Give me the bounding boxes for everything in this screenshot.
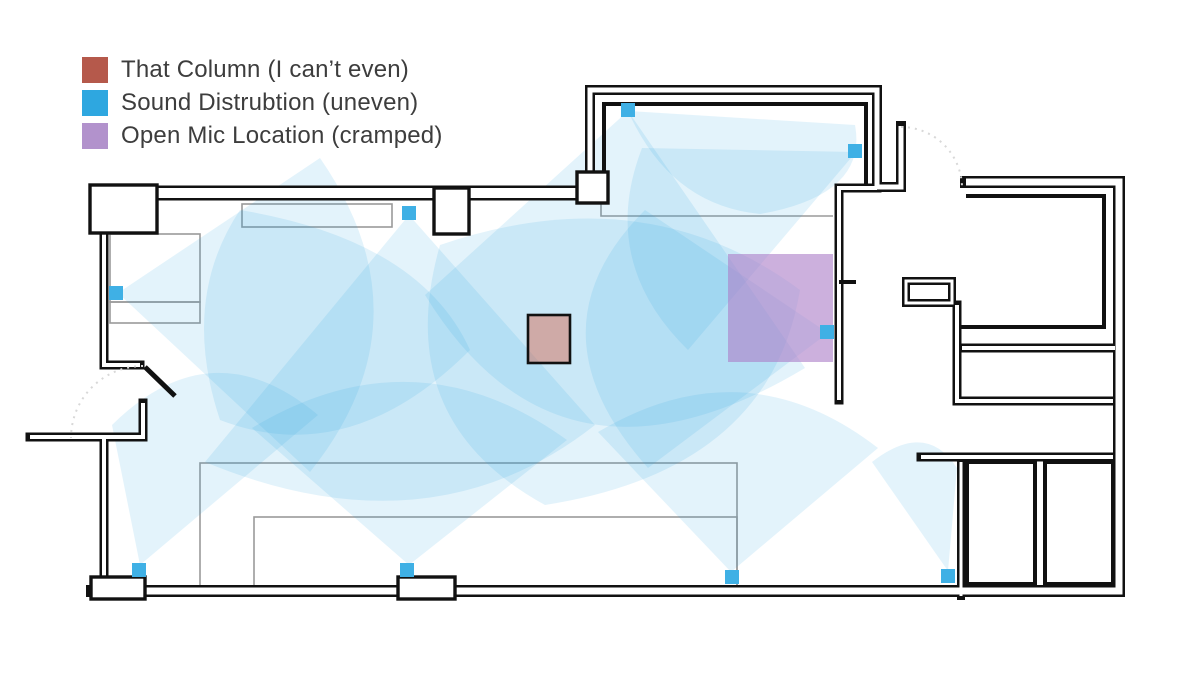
legend-row-column: That Column (I can’t even) xyxy=(82,57,443,83)
pier-top-mid xyxy=(434,188,469,234)
floor-plan-page: That Column (I can’t even) Sound Distrub… xyxy=(0,0,1200,693)
speaker-marker xyxy=(132,563,146,577)
wall-main-right-core xyxy=(839,188,877,400)
column-layer xyxy=(528,315,570,363)
legend-swatch-openmic xyxy=(82,123,108,149)
pier-stage-corner xyxy=(577,172,608,203)
wall-main-right xyxy=(839,188,877,400)
speaker-marker xyxy=(402,206,416,220)
legend-swatch-column xyxy=(82,57,108,83)
legend-row-sound: Sound Distrubtion (uneven) xyxy=(82,90,443,116)
bath-stall-left xyxy=(967,462,1035,584)
speaker-marker xyxy=(941,569,955,583)
speaker-marker xyxy=(820,325,834,339)
wall-corridor-core xyxy=(957,305,1113,401)
pier-bottom-left xyxy=(91,577,145,599)
open-mic-area xyxy=(728,254,833,362)
bath-stall-right xyxy=(1045,462,1113,584)
door-swing-arc-right xyxy=(901,127,962,188)
pier-bottom-mid xyxy=(398,577,455,599)
speaker-marker xyxy=(400,563,414,577)
wall-office-inner xyxy=(959,196,1104,327)
legend-label-openmic: Open Mic Location (cramped) xyxy=(121,122,443,150)
speaker-marker xyxy=(725,570,739,584)
column-marker xyxy=(528,315,570,363)
wall-corridor xyxy=(957,305,1113,401)
counter-bottom-inner xyxy=(254,517,737,586)
speaker-marker xyxy=(621,103,635,117)
speaker-marker xyxy=(848,144,862,158)
legend-label-sound: Sound Distrubtion (uneven) xyxy=(121,89,418,117)
wall-closet xyxy=(906,281,952,303)
legend-row-openmic: Open Mic Location (cramped) xyxy=(82,123,443,149)
speaker-marker xyxy=(109,286,123,300)
pier-top-left xyxy=(90,185,157,233)
coverage-area xyxy=(872,442,957,571)
legend-label-column: That Column (I can’t even) xyxy=(121,56,409,84)
open-mic-layer xyxy=(728,254,833,362)
legend: That Column (I can’t even) Sound Distrub… xyxy=(82,57,443,149)
legend-swatch-sound xyxy=(82,90,108,116)
